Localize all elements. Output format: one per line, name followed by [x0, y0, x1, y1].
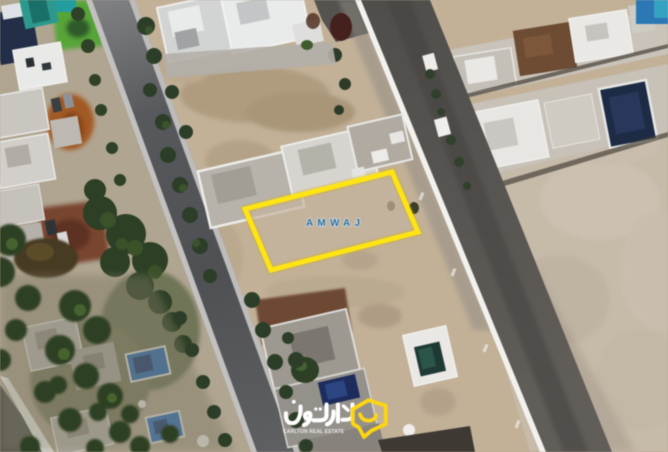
svg-text:CARLTON REAL ESTATE: CARLTON REAL ESTATE — [283, 429, 345, 435]
svg-text:AMWAJ: AMWAJ — [306, 218, 364, 229]
